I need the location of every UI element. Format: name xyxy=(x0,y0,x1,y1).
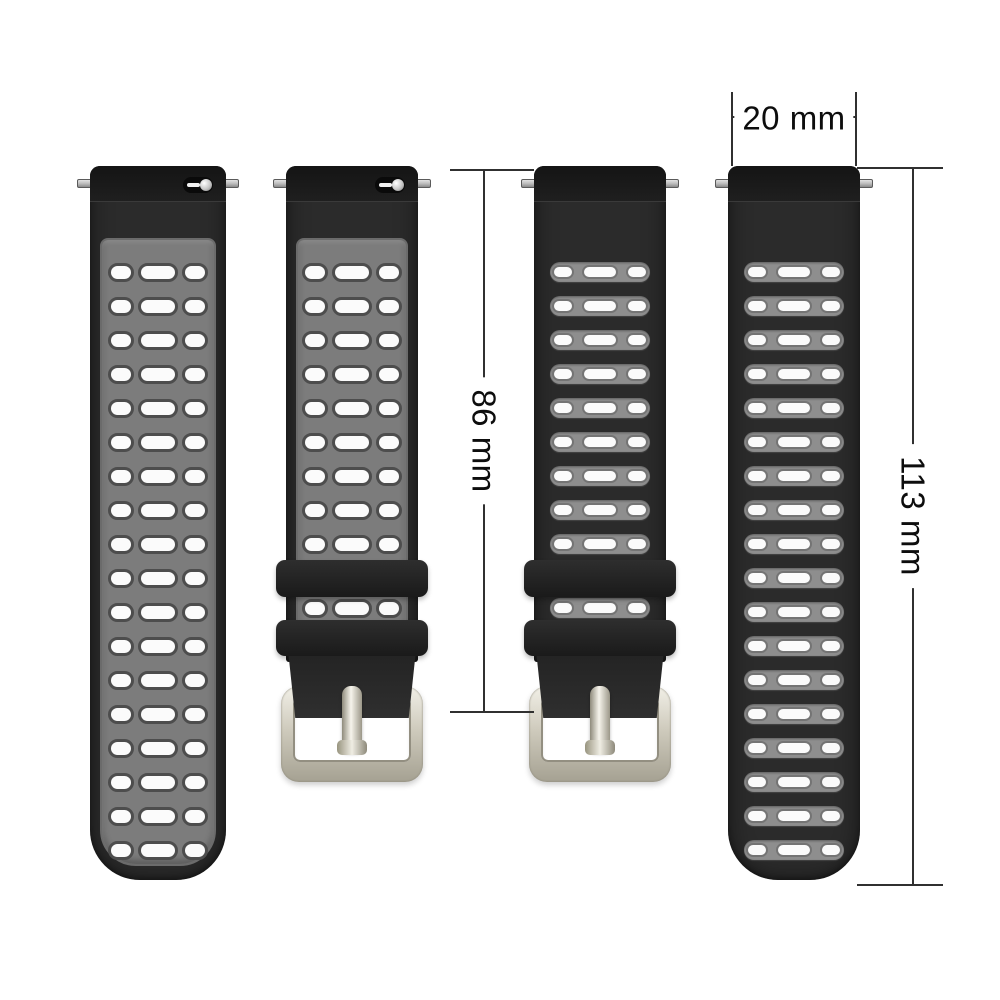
strap-hole xyxy=(820,299,842,313)
strap-hole-row xyxy=(90,534,226,554)
strap-hole-row xyxy=(90,432,226,452)
strap-hole-band xyxy=(744,602,844,622)
strap-hole-row xyxy=(286,534,418,554)
strap-hole xyxy=(302,297,328,316)
strap-hole xyxy=(776,605,812,619)
strap-hole xyxy=(582,469,618,483)
strap-hole xyxy=(182,705,208,724)
strap-hole xyxy=(582,367,618,381)
strap-hole xyxy=(552,299,574,313)
strap-hole-band xyxy=(744,500,844,520)
strap-hole xyxy=(376,331,402,350)
watch-strap-dimension-diagram: 20 mm 86 mm 113 mm xyxy=(0,0,1000,1000)
strap-hole xyxy=(138,365,178,384)
strap-hole xyxy=(820,843,842,857)
strap-hole-band xyxy=(744,364,844,384)
strap-hole xyxy=(108,297,134,316)
strap-hole xyxy=(820,605,842,619)
strap-hole-band xyxy=(550,598,650,618)
strap-hole xyxy=(746,367,768,381)
strap-hole-band xyxy=(550,432,650,452)
strap-hole xyxy=(626,435,648,449)
strap-hole xyxy=(138,671,178,690)
strap-hole xyxy=(376,399,402,418)
buckle-prong-foot xyxy=(337,740,367,755)
spring-bar-pin-right xyxy=(224,179,239,188)
strap-back-long xyxy=(728,166,860,880)
strap-hole xyxy=(746,435,768,449)
strap-hole-band xyxy=(550,330,650,350)
strap-hole xyxy=(302,365,328,384)
quick-release-slider-bar xyxy=(187,183,200,187)
strap-hole xyxy=(108,399,134,418)
strap-hole xyxy=(108,331,134,350)
strap-hole xyxy=(626,333,648,347)
strap-hole xyxy=(746,775,768,789)
strap-hole xyxy=(746,741,768,755)
strap-hole xyxy=(138,399,178,418)
strap-hole xyxy=(776,809,812,823)
strap-hole-band xyxy=(550,262,650,282)
strap-hole-row xyxy=(90,568,226,588)
strap-hole-band xyxy=(744,568,844,588)
buckle-prong-foot xyxy=(585,740,615,755)
strap-front-long xyxy=(90,166,226,880)
strap-hole xyxy=(746,843,768,857)
strap-hole xyxy=(376,365,402,384)
strap-hole xyxy=(182,841,208,860)
strap-hole xyxy=(302,599,328,618)
strap-hole xyxy=(746,707,768,721)
strap-hole-band xyxy=(744,296,844,316)
strap-hole-row xyxy=(286,598,418,618)
strap-hole xyxy=(138,331,178,350)
strap-hole xyxy=(108,841,134,860)
strap-hole xyxy=(776,673,812,687)
strap-back-buckle xyxy=(534,166,666,782)
strap-hole xyxy=(138,603,178,622)
strap-hole-row xyxy=(90,364,226,384)
strap-hole xyxy=(138,841,178,860)
strap-hole-band xyxy=(744,636,844,656)
keeper-band xyxy=(524,560,676,597)
strap-hole-row xyxy=(90,772,226,792)
strap-hole xyxy=(108,807,134,826)
keeper-band xyxy=(276,560,428,597)
strap-hole-band xyxy=(550,364,650,384)
strap-hole xyxy=(776,469,812,483)
strap-hole xyxy=(820,707,842,721)
strap-hole xyxy=(626,265,648,279)
strap-hole xyxy=(820,741,842,755)
strap-hole-row xyxy=(286,364,418,384)
quick-release-slider-knob xyxy=(200,179,212,191)
strap-hole-band xyxy=(744,534,844,554)
spring-bar-pin-right xyxy=(664,179,679,188)
strap-hole xyxy=(332,433,372,452)
strap-hole xyxy=(302,535,328,554)
strap-hole xyxy=(746,673,768,687)
strap-hole xyxy=(182,399,208,418)
strap-hole-row xyxy=(286,398,418,418)
strap-hole xyxy=(302,467,328,486)
strap-hole xyxy=(820,571,842,585)
strap-hole xyxy=(376,501,402,520)
strap-hole xyxy=(182,807,208,826)
strap-hole xyxy=(746,401,768,415)
strap-hole xyxy=(332,297,372,316)
strap-hole xyxy=(182,535,208,554)
spring-bar-pin-right xyxy=(858,179,873,188)
strap-hole-row xyxy=(286,330,418,350)
strap-hole-band xyxy=(744,704,844,724)
strap-hole-row xyxy=(90,262,226,282)
strap-hole xyxy=(582,435,618,449)
strap-hole xyxy=(582,333,618,347)
strap-hole xyxy=(746,333,768,347)
strap-hole xyxy=(182,603,208,622)
strap-hole xyxy=(108,671,134,690)
keeper-band xyxy=(524,620,676,656)
strap-hole xyxy=(376,433,402,452)
strap-hole-row xyxy=(286,432,418,452)
strap-top-cap xyxy=(534,166,666,202)
strap-hole xyxy=(582,265,618,279)
strap-hole xyxy=(302,501,328,520)
strap-hole-band xyxy=(744,840,844,860)
strap-hole xyxy=(746,639,768,653)
straps-scene xyxy=(0,0,1000,1000)
strap-hole-row xyxy=(90,500,226,520)
strap-hole xyxy=(746,503,768,517)
strap-hole xyxy=(108,739,134,758)
strap-hole xyxy=(626,601,648,615)
strap-hole-band xyxy=(550,500,650,520)
strap-hole xyxy=(746,537,768,551)
strap-hole xyxy=(376,467,402,486)
strap-hole xyxy=(182,773,208,792)
strap-hole xyxy=(552,367,574,381)
strap-hole xyxy=(626,401,648,415)
strap-hole xyxy=(776,367,812,381)
strap-hole xyxy=(820,503,842,517)
strap-hole-row xyxy=(90,330,226,350)
strap-hole xyxy=(776,299,812,313)
strap-hole xyxy=(138,535,178,554)
strap-hole xyxy=(182,297,208,316)
strap-hole xyxy=(552,401,574,415)
strap-hole xyxy=(138,637,178,656)
strap-hole xyxy=(138,263,178,282)
strap-hole xyxy=(108,467,134,486)
strap-hole-row xyxy=(286,500,418,520)
strap-hole xyxy=(582,503,618,517)
strap-hole-row xyxy=(90,738,226,758)
strap-hole xyxy=(182,433,208,452)
strap-hole-row xyxy=(90,840,226,860)
strap-hole xyxy=(776,401,812,415)
strap-hole xyxy=(302,263,328,282)
strap-hole xyxy=(582,537,618,551)
quick-release-slider-knob xyxy=(392,179,404,191)
strap-hole xyxy=(746,605,768,619)
strap-hole xyxy=(776,571,812,585)
strap-hole xyxy=(626,503,648,517)
strap-hole xyxy=(776,537,812,551)
strap-hole xyxy=(552,503,574,517)
strap-hole xyxy=(182,365,208,384)
strap-hole xyxy=(552,435,574,449)
strap-hole xyxy=(332,263,372,282)
strap-hole xyxy=(376,599,402,618)
strap-hole xyxy=(776,435,812,449)
strap-hole xyxy=(138,773,178,792)
strap-hole-band xyxy=(744,398,844,418)
strap-hole xyxy=(820,673,842,687)
strap-hole xyxy=(746,469,768,483)
strap-hole xyxy=(108,263,134,282)
strap-hole xyxy=(626,299,648,313)
strap-hole xyxy=(182,501,208,520)
strap-hole-band xyxy=(744,432,844,452)
strap-hole xyxy=(182,467,208,486)
strap-hole xyxy=(138,297,178,316)
keeper-band xyxy=(276,620,428,656)
strap-hole xyxy=(302,331,328,350)
strap-hole xyxy=(626,367,648,381)
strap-hole xyxy=(746,299,768,313)
strap-hole xyxy=(582,401,618,415)
strap-hole-band xyxy=(744,262,844,282)
strap-hole xyxy=(332,535,372,554)
strap-hole-band xyxy=(550,398,650,418)
strap-hole-row xyxy=(90,806,226,826)
strap-hole xyxy=(820,333,842,347)
strap-hole xyxy=(746,265,768,279)
strap-hole xyxy=(776,503,812,517)
strap-hole xyxy=(332,467,372,486)
strap-hole-row xyxy=(90,636,226,656)
strap-hole xyxy=(820,367,842,381)
strap-hole xyxy=(820,775,842,789)
strap-hole xyxy=(332,331,372,350)
strap-hole-band xyxy=(744,738,844,758)
strap-hole xyxy=(138,705,178,724)
strap-hole xyxy=(108,705,134,724)
strap-hole xyxy=(376,535,402,554)
strap-hole xyxy=(138,433,178,452)
strap-hole-row xyxy=(90,296,226,316)
strap-hole xyxy=(182,739,208,758)
strap-hole-band xyxy=(744,772,844,792)
strap-hole-row xyxy=(90,704,226,724)
strap-hole-row xyxy=(90,466,226,486)
strap-hole xyxy=(776,333,812,347)
strap-hole xyxy=(776,639,812,653)
strap-hole xyxy=(552,265,574,279)
strap-hole xyxy=(820,639,842,653)
strap-hole xyxy=(138,739,178,758)
strap-hole xyxy=(820,401,842,415)
strap-hole xyxy=(182,671,208,690)
strap-hole xyxy=(182,569,208,588)
strap-hole xyxy=(626,469,648,483)
quick-release-slider xyxy=(375,177,405,193)
strap-top-cap xyxy=(728,166,860,202)
strap-hole xyxy=(138,569,178,588)
strap-hole xyxy=(376,297,402,316)
strap-hole xyxy=(776,265,812,279)
strap-hole-band xyxy=(550,534,650,554)
strap-hole xyxy=(552,469,574,483)
strap-hole xyxy=(108,603,134,622)
strap-hole xyxy=(776,775,812,789)
spring-bar-pin-right xyxy=(416,179,431,188)
strap-hole xyxy=(138,467,178,486)
strap-hole-band xyxy=(550,296,650,316)
quick-release-slider xyxy=(183,177,213,193)
strap-hole xyxy=(552,333,574,347)
strap-hole xyxy=(108,501,134,520)
strap-hole xyxy=(302,399,328,418)
strap-hole xyxy=(820,537,842,551)
strap-hole xyxy=(108,365,134,384)
strap-hole-row xyxy=(90,398,226,418)
strap-hole xyxy=(302,433,328,452)
strap-hole xyxy=(776,741,812,755)
strap-hole xyxy=(108,535,134,554)
strap-hole xyxy=(138,807,178,826)
strap-hole xyxy=(332,501,372,520)
strap-hole xyxy=(820,435,842,449)
strap-hole xyxy=(108,773,134,792)
strap-hole-row xyxy=(286,262,418,282)
strap-hole-band xyxy=(744,670,844,690)
strap-hole-row xyxy=(286,296,418,316)
strap-hole-band xyxy=(744,466,844,486)
strap-hole xyxy=(108,569,134,588)
strap-hole xyxy=(776,707,812,721)
strap-hole xyxy=(138,501,178,520)
strap-hole-band xyxy=(550,466,650,486)
strap-hole xyxy=(182,637,208,656)
strap-hole xyxy=(820,809,842,823)
strap-front-buckle xyxy=(286,166,418,782)
strap-hole xyxy=(746,809,768,823)
strap-hole xyxy=(182,331,208,350)
strap-hole xyxy=(332,399,372,418)
strap-hole-band xyxy=(744,330,844,350)
strap-hole xyxy=(376,263,402,282)
strap-hole xyxy=(820,469,842,483)
strap-hole xyxy=(332,599,372,618)
strap-hole-row xyxy=(286,466,418,486)
strap-hole xyxy=(108,433,134,452)
strap-hole-row xyxy=(90,670,226,690)
strap-hole xyxy=(332,365,372,384)
strap-hole-row xyxy=(90,602,226,622)
strap-hole xyxy=(552,601,574,615)
strap-hole xyxy=(626,537,648,551)
quick-release-slider-bar xyxy=(379,183,392,187)
strap-hole xyxy=(820,265,842,279)
strap-hole xyxy=(552,537,574,551)
strap-hole xyxy=(582,601,618,615)
strap-hole xyxy=(108,637,134,656)
strap-hole-band xyxy=(744,806,844,826)
strap-hole xyxy=(582,299,618,313)
strap-hole xyxy=(746,571,768,585)
strap-hole xyxy=(182,263,208,282)
strap-hole xyxy=(776,843,812,857)
